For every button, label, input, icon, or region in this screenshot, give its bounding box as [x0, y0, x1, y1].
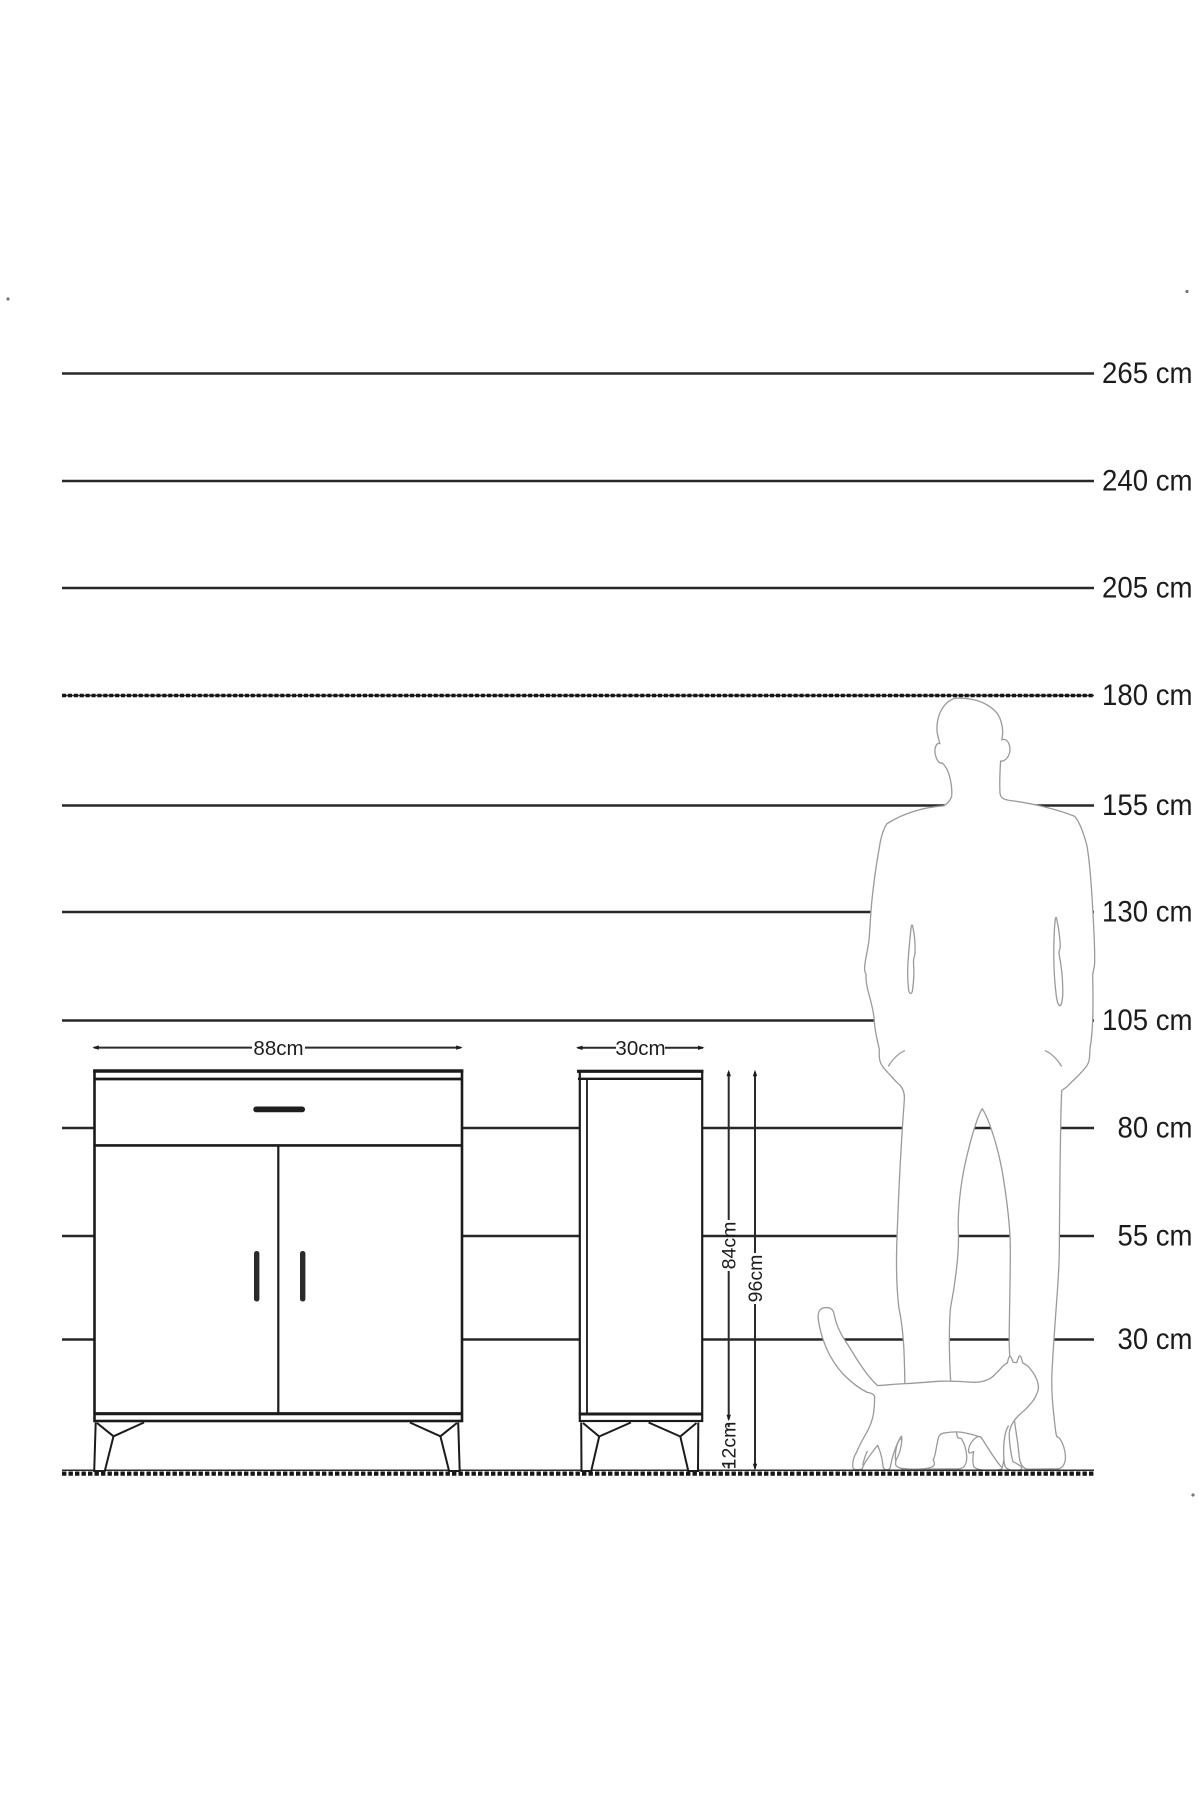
svg-text:30 cm: 30 cm [1118, 1323, 1193, 1356]
svg-text:205 cm: 205 cm [1102, 572, 1193, 605]
svg-text:265 cm: 265 cm [1102, 357, 1193, 390]
svg-text:180 cm: 180 cm [1102, 679, 1193, 712]
svg-text:80 cm: 80 cm [1118, 1112, 1193, 1145]
svg-text:240 cm: 240 cm [1102, 465, 1193, 498]
svg-text:105 cm: 105 cm [1102, 1004, 1193, 1037]
svg-text:130 cm: 130 cm [1102, 896, 1193, 929]
svg-text:30cm: 30cm [615, 1037, 665, 1060]
svg-text:12cm: 12cm [719, 1422, 741, 1470]
svg-text:55 cm: 55 cm [1118, 1220, 1193, 1253]
svg-text:96cm: 96cm [745, 1255, 767, 1303]
svg-text:84cm: 84cm [719, 1222, 741, 1270]
svg-text:155 cm: 155 cm [1102, 789, 1193, 822]
svg-text:88cm: 88cm [253, 1037, 303, 1060]
